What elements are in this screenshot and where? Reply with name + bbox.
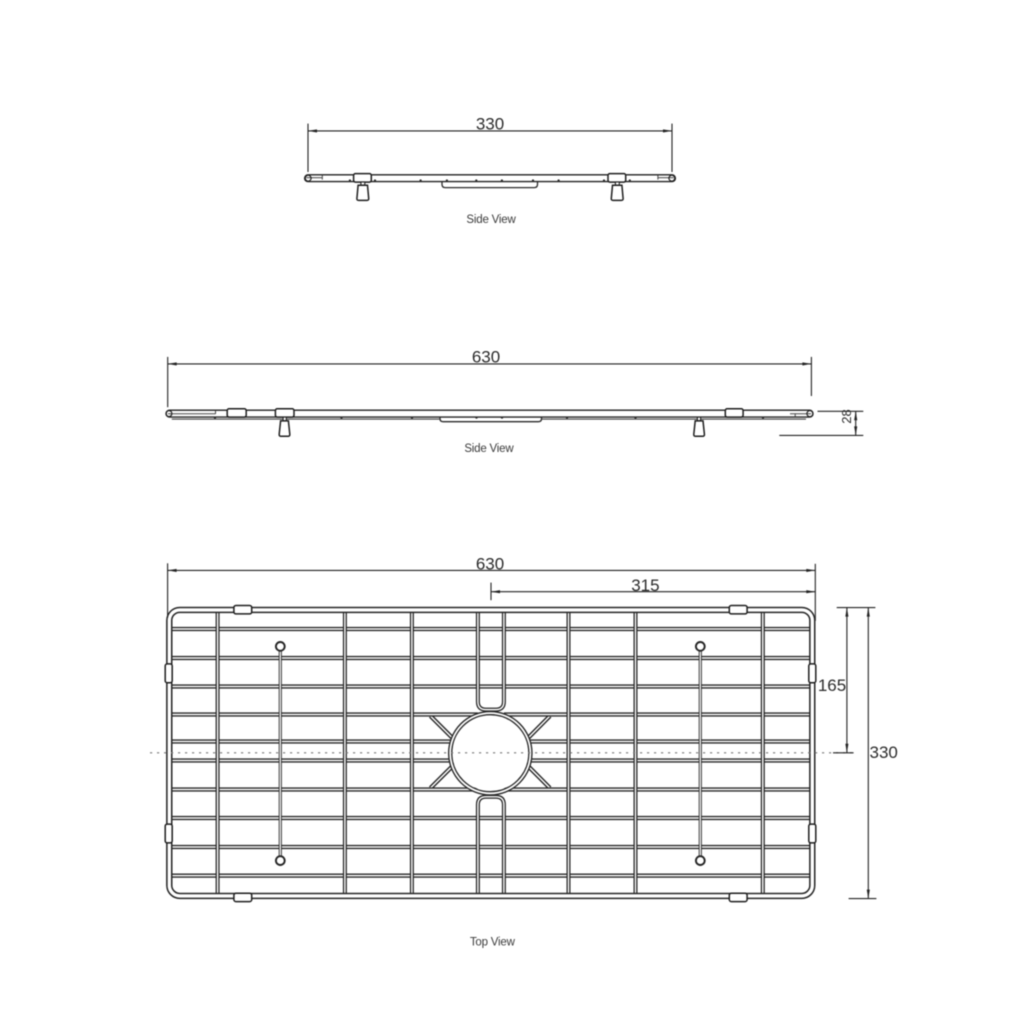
svg-text:330: 330 [870, 743, 898, 762]
svg-text:Side View: Side View [466, 214, 516, 226]
svg-text:330: 330 [476, 115, 504, 134]
svg-text:630: 630 [472, 348, 500, 367]
svg-text:Top View: Top View [470, 937, 516, 949]
svg-text:315: 315 [631, 576, 659, 595]
svg-text:28: 28 [839, 409, 854, 423]
svg-text:165: 165 [818, 676, 846, 695]
svg-text:Side View: Side View [464, 443, 514, 455]
svg-text:630: 630 [476, 554, 504, 573]
